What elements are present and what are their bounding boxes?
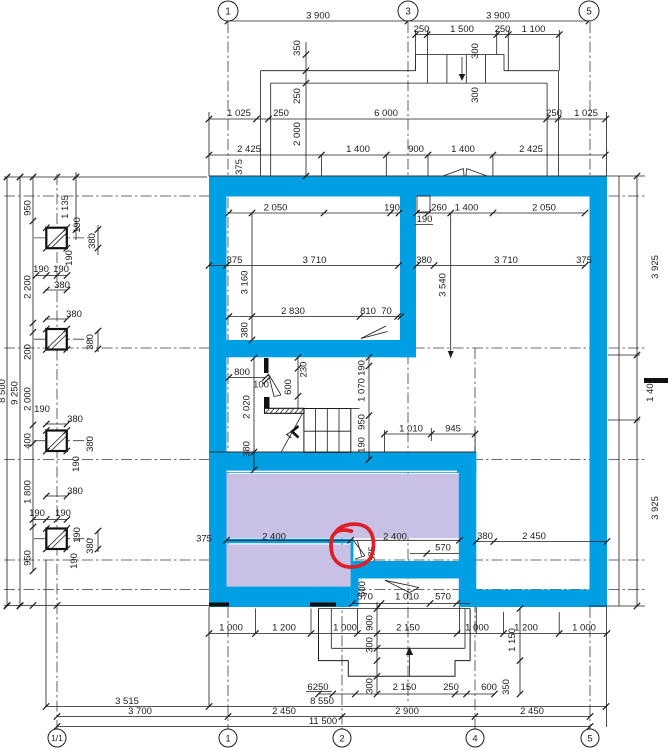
svg-text:260: 260 [431,203,447,214]
svg-text:380: 380 [416,255,432,266]
svg-text:2 450: 2 450 [272,706,296,717]
svg-text:9 250: 9 250 [10,381,21,405]
svg-text:190: 190 [357,437,368,453]
svg-text:1 070: 1 070 [357,378,368,402]
svg-text:1 025: 1 025 [574,108,598,119]
svg-text:250: 250 [273,108,289,119]
svg-text:8 500: 8 500 [0,379,8,403]
svg-text:2 900: 2 900 [395,706,419,717]
svg-text:2 200: 2 200 [23,275,34,299]
svg-text:1/1: 1/1 [51,733,63,743]
svg-text:2 150: 2 150 [393,682,417,693]
svg-text:900: 900 [365,615,376,631]
svg-text:5: 5 [587,733,592,744]
svg-text:950: 950 [23,550,34,566]
svg-text:3 900: 3 900 [486,11,510,22]
svg-text:1 010: 1 010 [395,592,419,603]
svg-text:1 400: 1 400 [346,144,370,155]
svg-text:400: 400 [23,433,34,449]
svg-text:2 000: 2 000 [23,387,34,411]
svg-text:300: 300 [470,87,481,103]
svg-text:3: 3 [405,7,411,18]
svg-text:3 540: 3 540 [438,273,449,297]
svg-text:2: 2 [339,733,344,744]
svg-text:250: 250 [292,88,303,104]
svg-text:380: 380 [67,486,83,497]
svg-text:190: 190 [55,508,71,519]
svg-text:950: 950 [357,414,368,430]
svg-text:380: 380 [87,233,98,249]
svg-text:1 000: 1 000 [465,623,489,634]
svg-text:1 100: 1 100 [522,24,546,35]
svg-text:380: 380 [54,280,70,291]
svg-text:190: 190 [384,203,400,214]
svg-text:11 500: 11 500 [309,716,337,727]
svg-text:2 050: 2 050 [532,203,556,214]
svg-text:380: 380 [66,309,82,320]
svg-text:600: 600 [481,682,497,693]
svg-text:4: 4 [472,733,477,744]
svg-text:1 000: 1 000 [219,623,243,634]
svg-text:5: 5 [586,7,592,18]
svg-text:2 400: 2 400 [383,531,407,542]
svg-text:1 000: 1 000 [333,623,357,634]
svg-text:300: 300 [365,637,376,653]
svg-text:1 000: 1 000 [572,623,596,634]
svg-text:190: 190 [69,553,80,569]
svg-text:2 425: 2 425 [237,144,261,155]
svg-text:350: 350 [292,40,303,56]
svg-text:190: 190 [72,217,83,233]
svg-text:200: 200 [23,344,34,360]
svg-text:380: 380 [67,414,83,425]
svg-text:250: 250 [546,108,562,119]
svg-text:375: 375 [196,534,212,545]
svg-text:2 150: 2 150 [396,623,420,634]
svg-text:2 450: 2 450 [522,531,546,542]
svg-text:380: 380 [85,538,96,554]
svg-text:3 900: 3 900 [306,11,330,22]
svg-text:2 050: 2 050 [264,203,288,214]
svg-text:600: 600 [283,379,294,395]
svg-text:300: 300 [470,43,481,59]
svg-text:250: 250 [414,24,430,35]
svg-text:1 400: 1 400 [451,144,475,155]
svg-text:1 500: 1 500 [450,24,474,35]
svg-text:250: 250 [495,24,511,35]
svg-text:190: 190 [53,264,69,275]
svg-text:350: 350 [501,679,512,695]
svg-text:570: 570 [435,592,451,603]
svg-text:2 000: 2 000 [292,122,303,146]
svg-text:3 925: 3 925 [650,496,661,520]
svg-text:1: 1 [225,733,230,744]
svg-text:190: 190 [72,527,83,543]
svg-text:1 400: 1 400 [455,203,479,214]
svg-text:2 425: 2 425 [519,144,543,155]
svg-text:190: 190 [71,456,82,472]
svg-text:380: 380 [477,531,493,542]
svg-text:3 700: 3 700 [128,706,152,717]
svg-text:2 020: 2 020 [242,395,253,419]
svg-text:3 160: 3 160 [240,271,251,295]
svg-text:945: 945 [445,424,461,435]
svg-text:1: 1 [225,7,231,18]
svg-text:380: 380 [85,436,96,452]
svg-text:190: 190 [417,214,433,225]
svg-text:950: 950 [23,200,34,216]
svg-text:375: 375 [227,255,243,266]
svg-text:375: 375 [576,255,592,266]
svg-text:2 400: 2 400 [262,531,286,542]
svg-text:1 150: 1 150 [507,628,518,652]
svg-text:70: 70 [381,306,392,317]
svg-text:230: 230 [299,362,310,378]
svg-text:300: 300 [365,678,376,694]
svg-text:190: 190 [34,404,50,415]
svg-text:900: 900 [408,144,424,155]
svg-text:190: 190 [357,360,368,376]
svg-text:6 000: 6 000 [374,108,398,119]
svg-text:570: 570 [435,543,451,554]
svg-text:250: 250 [443,682,459,693]
svg-text:800: 800 [234,367,250,378]
svg-text:1 025: 1 025 [227,108,251,119]
svg-text:380: 380 [85,334,96,350]
svg-text:810: 810 [360,306,376,317]
svg-text:190: 190 [29,508,45,519]
svg-text:3 710: 3 710 [303,255,327,266]
svg-text:1 800: 1 800 [23,480,34,504]
svg-text:3 925: 3 925 [650,255,661,279]
svg-text:380: 380 [242,441,253,457]
svg-text:190: 190 [33,264,49,275]
svg-text:2 450: 2 450 [520,706,544,717]
svg-text:3 710: 3 710 [494,255,518,266]
svg-text:8 550: 8 550 [310,696,334,707]
svg-text:2 830: 2 830 [281,306,305,317]
svg-text:600: 600 [357,581,368,597]
svg-text:380: 380 [240,322,251,338]
svg-text:375: 375 [234,159,245,175]
svg-text:1 200: 1 200 [272,623,296,634]
svg-text:1 135: 1 135 [60,195,71,219]
svg-text:1 010: 1 010 [399,424,423,435]
